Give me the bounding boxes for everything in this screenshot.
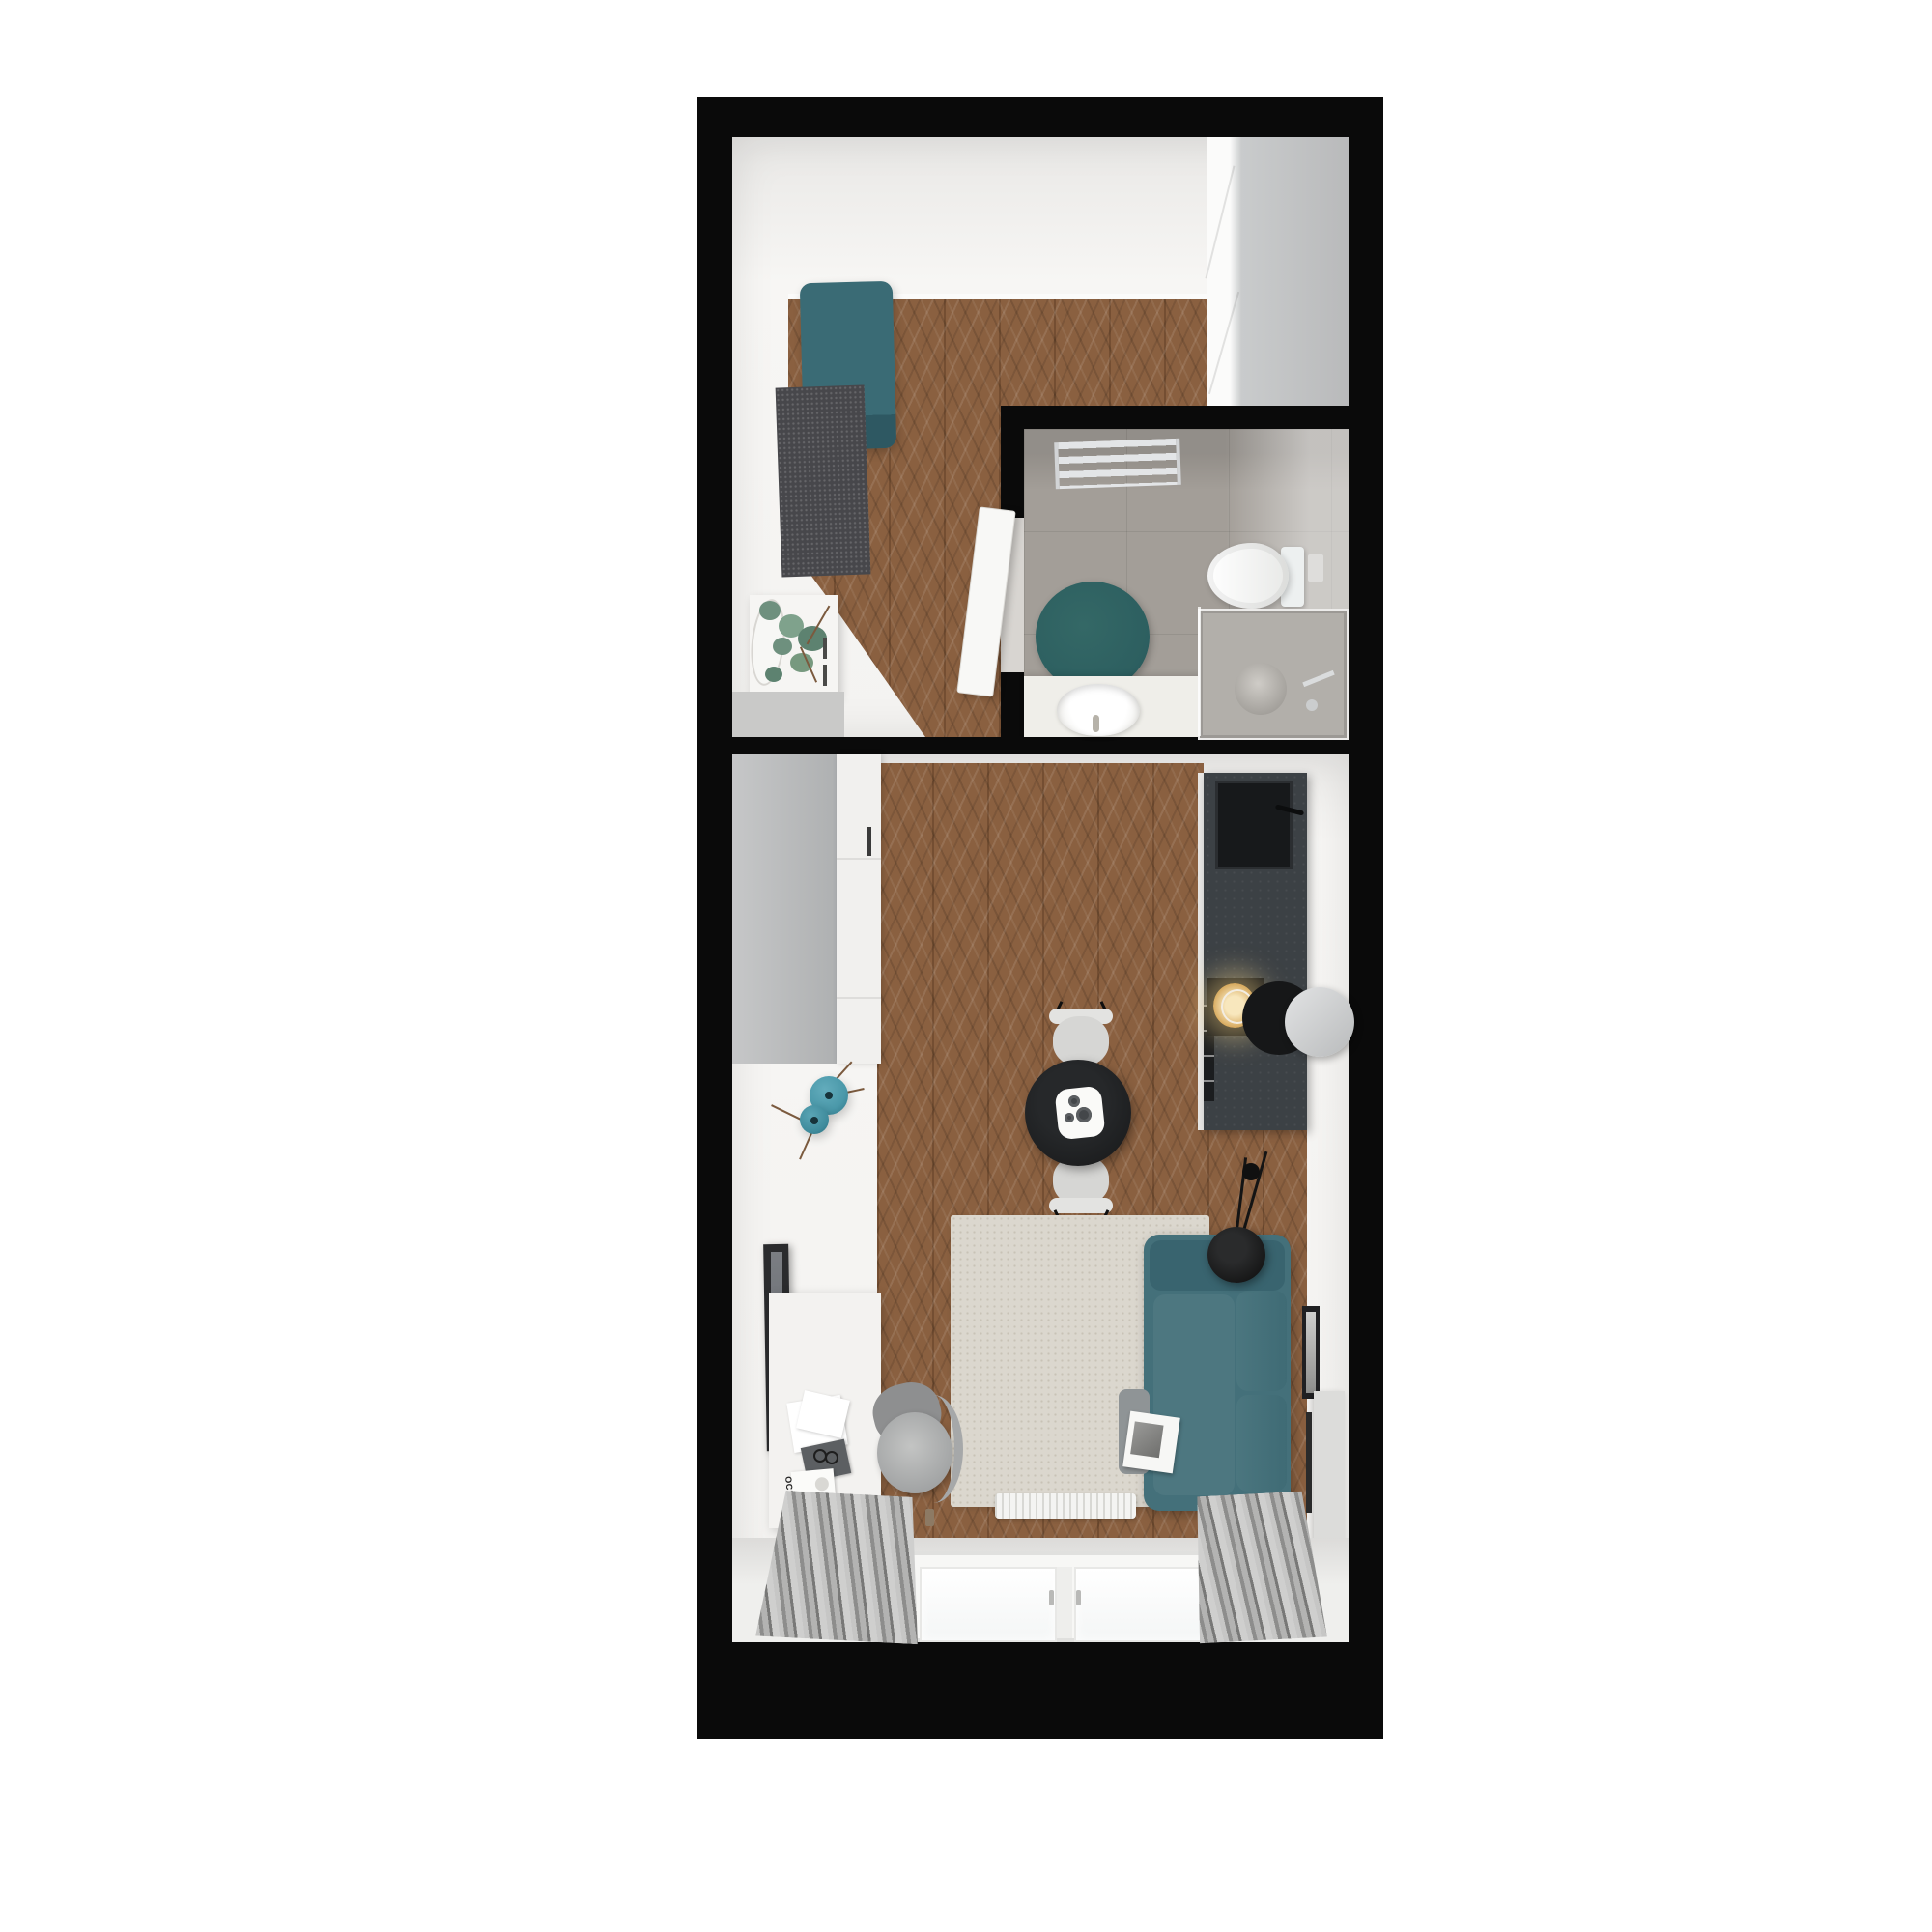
wall-panel [1314, 1391, 1345, 1546]
magazine-logo-icon [814, 1477, 829, 1492]
cup [1065, 1113, 1074, 1122]
bathroom-teal-rug [1036, 582, 1150, 692]
cabinet-seam [837, 858, 881, 860]
towel-radiator [1054, 439, 1181, 490]
console-handle [823, 665, 827, 686]
shower-glass-panel [1198, 607, 1201, 736]
living-gray-wardrobe [732, 754, 838, 1064]
cabinet-handle [867, 827, 871, 856]
sofa-back-cushion [1236, 1395, 1287, 1492]
cup [1068, 1095, 1080, 1107]
basin-drain [1093, 715, 1099, 732]
sofa-back-cushion [1236, 1291, 1287, 1391]
bathroom-wall-left [1001, 672, 1024, 737]
wall-picture-frame [1302, 1306, 1320, 1399]
sofa-magazine [1122, 1411, 1180, 1474]
window-pane-left [920, 1567, 1057, 1642]
vase-opening [810, 1117, 818, 1124]
flush-plate [1308, 554, 1323, 582]
page-background: OC! [0, 0, 1932, 1932]
eyeglasses-icon [825, 1451, 838, 1464]
console-handle [823, 638, 827, 659]
window-radiator [995, 1493, 1136, 1519]
shower-head [1306, 699, 1318, 711]
entry-mat [732, 692, 844, 737]
window-pane-right [1074, 1567, 1211, 1642]
office-chair-leg [925, 1509, 934, 1526]
floor-lamp-shade [1207, 1227, 1265, 1283]
vase-opening [825, 1092, 833, 1099]
plant-leaf-icon [759, 601, 781, 620]
dining-chair-south-back [1049, 1198, 1113, 1213]
bathroom-wall-top [1001, 406, 1349, 429]
leaning-frame [1306, 1412, 1312, 1513]
window-mullion [1057, 1567, 1072, 1638]
magazine-photo [1130, 1421, 1163, 1458]
hall-wardrobe [1207, 137, 1349, 406]
picture-image [1306, 1312, 1316, 1393]
plant-leaf-icon [773, 638, 792, 655]
window-handle [1076, 1590, 1081, 1605]
cup [1076, 1107, 1092, 1122]
kitchen-sink [1215, 781, 1293, 869]
bathroom-wall-left [1001, 429, 1024, 518]
toilet [1207, 543, 1289, 609]
shower-drain-cover [1235, 663, 1287, 715]
hall-dark-rug [776, 384, 871, 577]
plant-leaf-icon [765, 667, 782, 682]
floor-lamp-base [1242, 1163, 1260, 1180]
window [908, 1551, 1223, 1642]
cooker-hood-top [1285, 987, 1354, 1057]
living-cabinet-front [837, 754, 881, 1064]
window-handle [1049, 1590, 1054, 1605]
cabinet-seam [837, 997, 881, 999]
